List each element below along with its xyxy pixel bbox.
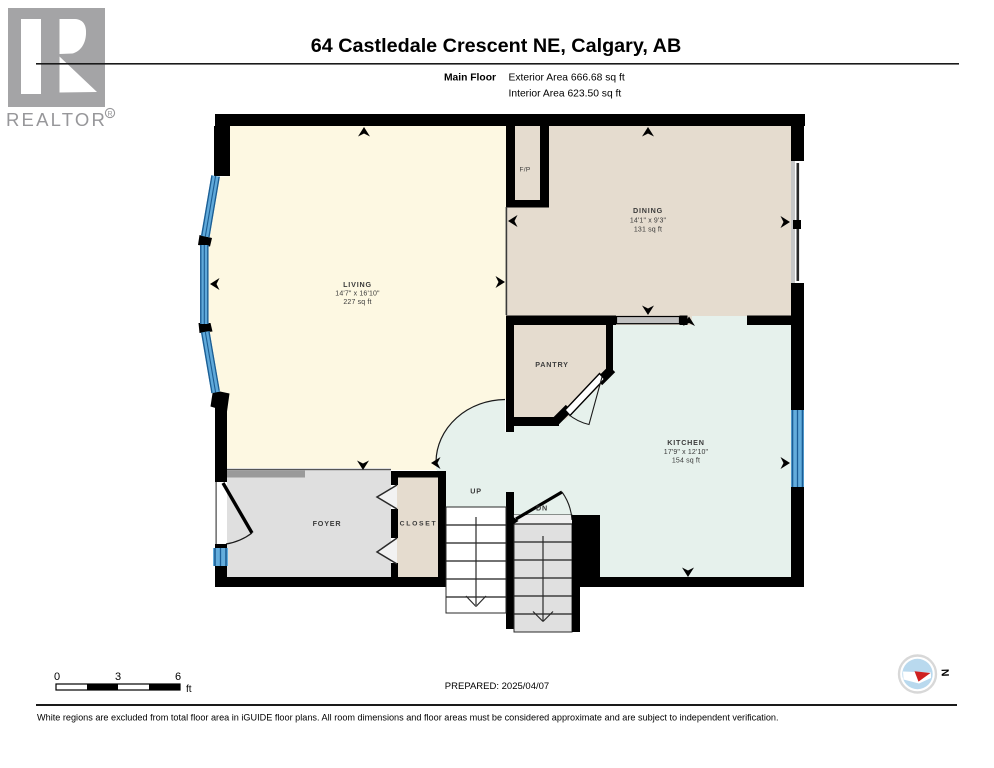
svg-text:F/P: F/P [519, 167, 530, 174]
svg-text:131 sq ft: 131 sq ft [634, 227, 662, 234]
svg-text:14'7" x 16'10": 14'7" x 16'10" [335, 291, 380, 298]
svg-text:R: R [107, 111, 112, 118]
svg-text:Interior Area 623.50 sq ft: Interior Area 623.50 sq ft [509, 88, 622, 99]
svg-text:227 sq ft: 227 sq ft [343, 299, 371, 306]
svg-text:Exterior Area 666.68 sq ft: Exterior Area 666.68 sq ft [509, 73, 625, 84]
svg-text:UP: UP [470, 487, 482, 496]
svg-text:CLOSET: CLOSET [400, 521, 438, 528]
svg-text:PREPARED: 2025/04/07: PREPARED: 2025/04/07 [445, 681, 549, 692]
svg-text:154 sq ft: 154 sq ft [672, 458, 700, 465]
svg-text:64 Castledale Crescent NE, Cal: 64 Castledale Crescent NE, Calgary, AB [311, 35, 682, 57]
svg-text:ft: ft [186, 684, 192, 695]
svg-text:6: 6 [175, 671, 181, 683]
svg-text:3: 3 [115, 671, 121, 683]
svg-text:REALTOR: REALTOR [6, 109, 107, 130]
svg-text:White regions are excluded fro: White regions are excluded from total fl… [37, 713, 779, 723]
svg-text:KITCHEN: KITCHEN [667, 438, 705, 447]
svg-text:N: N [939, 669, 951, 677]
svg-text:DINING: DINING [633, 206, 663, 215]
svg-text:LIVING: LIVING [343, 280, 372, 289]
svg-text:PANTRY: PANTRY [535, 360, 569, 369]
svg-text:FOYER: FOYER [313, 519, 342, 528]
svg-text:Main Floor: Main Floor [444, 73, 496, 84]
svg-text:17'9" x 12'10": 17'9" x 12'10" [664, 449, 709, 456]
svg-text:0: 0 [54, 671, 60, 683]
svg-text:14'1" x 9'3": 14'1" x 9'3" [630, 218, 667, 225]
svg-text:DN: DN [536, 504, 548, 513]
